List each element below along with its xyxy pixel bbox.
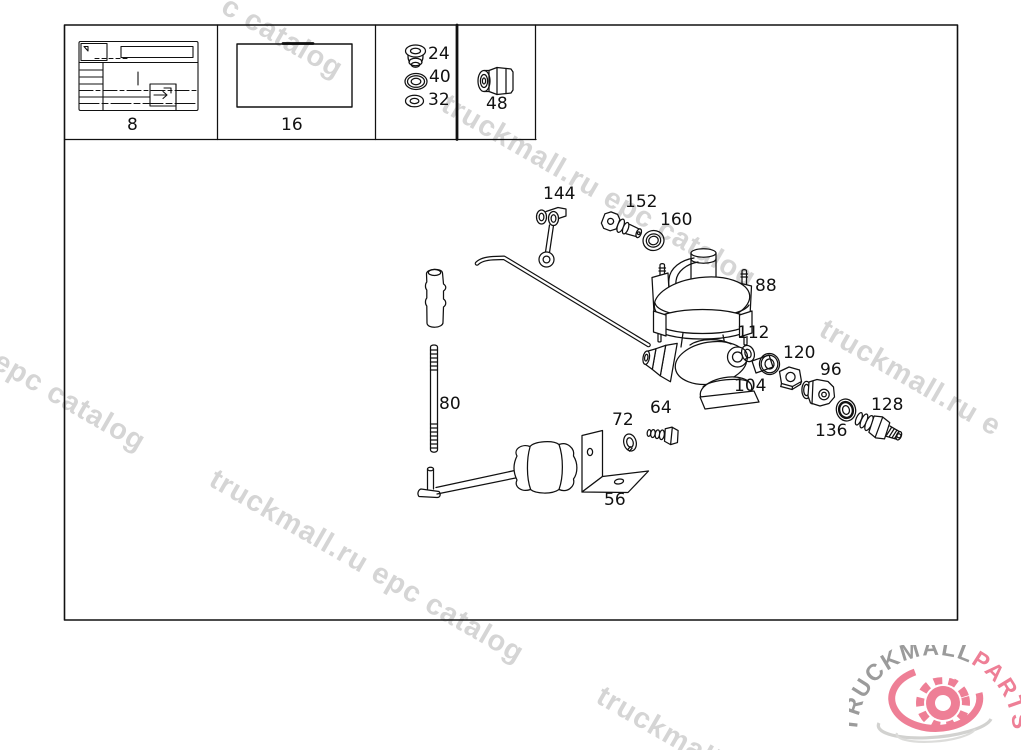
part-144-linkage-icon [537,208,567,268]
brand-logo: TRUCKMALLPARTS [849,645,1021,747]
part-96-plug-fitting-icon [802,380,835,407]
part-label-152: 152 [625,192,657,212]
diagram-frame [65,25,958,620]
part-label-112: 112 [737,323,769,343]
part-24-grommet-icon [406,45,426,67]
part-16-plate-icon [237,44,352,108]
part-label-104: 104 [734,376,766,396]
part-32-seal-ring-icon [406,95,424,107]
part-label-160: 160 [660,210,692,230]
part-label-96: 96 [820,360,842,380]
part-label-72: 72 [612,410,634,430]
part-48-fitting-icon [478,68,513,95]
part-valve-lever-boot [418,442,577,498]
part-label-48: 48 [486,94,508,114]
part-label-40: 40 [429,67,451,87]
part-8-data-plate-icon [79,42,198,111]
part-label-136: 136 [815,421,847,441]
part-152-fitting-bolt-icon [600,210,645,241]
part-label-24: 24 [428,44,450,64]
brand-name-pink: PARTS [968,645,1021,731]
part-56-bracket-icon [582,431,649,493]
part-72-lock-washer-icon [622,433,638,453]
parts-catalog-page: c catalog truckmall.ru epc catalog l epc… [0,0,1024,750]
part-136-seal-ring-icon [834,397,858,423]
part-label-56: 56 [604,490,626,510]
part-40-washer-icon [405,74,427,90]
part-label-88: 88 [755,276,777,296]
part-label-8: 8 [127,115,138,135]
part-120-nut-icon [780,367,802,390]
part-label-80: 80 [439,394,461,414]
part-64-bolt-icon [646,424,679,446]
part-connecting-rod [477,258,649,345]
part-label-64: 64 [650,398,672,418]
part-label-128: 128 [871,395,903,415]
part-label-144: 144 [543,184,575,204]
diagram-canvas [0,0,1024,750]
part-label-32: 32 [428,90,450,110]
part-160-sealing-ring-icon [641,228,666,252]
part-80-threaded-rod [431,345,438,452]
part-80-rubber-buffer [425,269,445,327]
part-label-16: 16 [281,115,303,135]
part-label-120: 120 [783,343,815,363]
